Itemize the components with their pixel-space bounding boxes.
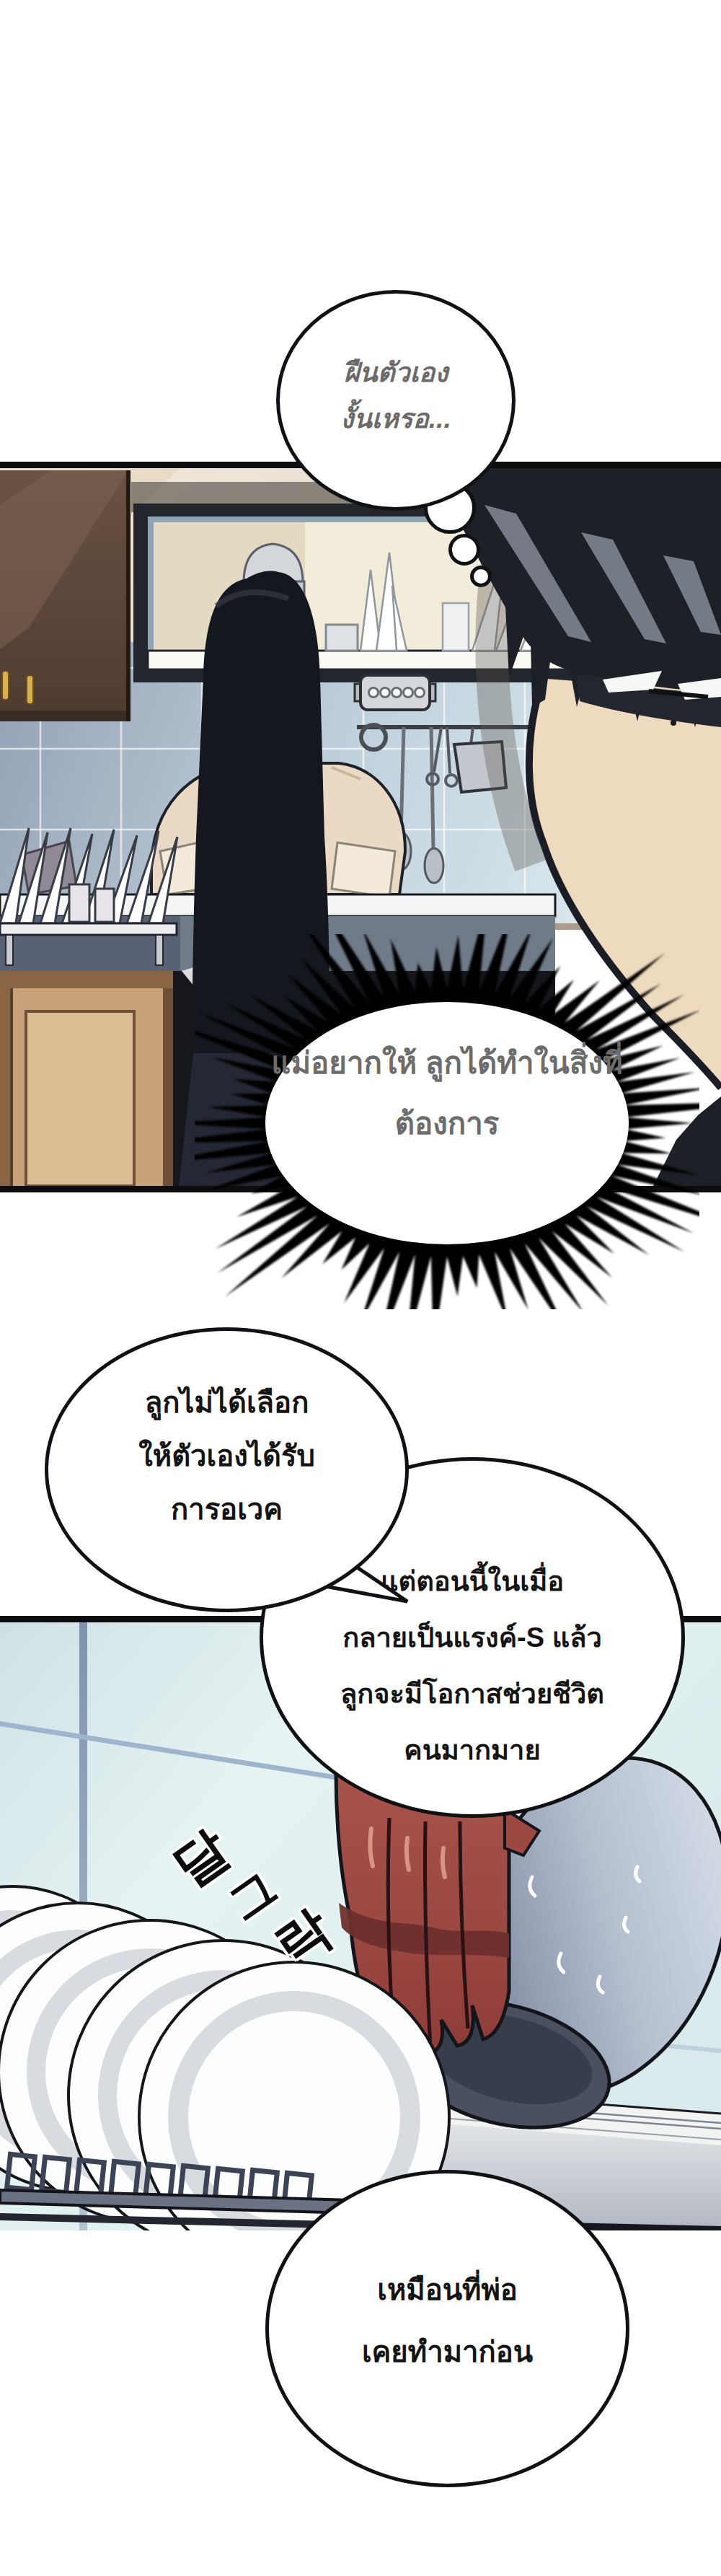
cabinet-handle	[2, 671, 9, 700]
bubble2-line: คนมากมาย	[404, 1722, 540, 1778]
rolled-cuff	[332, 843, 395, 897]
thought-line: ฝืนตัวเอง	[344, 350, 448, 396]
speech-bubble-3: เหมือนที่พ่อ เคยทำมาก่อน	[265, 2170, 629, 2487]
cabinet-handle	[27, 675, 33, 704]
lower-cabinets	[0, 971, 173, 1186]
control-panel	[355, 675, 435, 710]
upper-cabinet	[0, 470, 131, 721]
thought-line: งั้นเหรอ...	[340, 396, 451, 442]
bubble2-line: กลายเป็นแรงค์-S แล้ว	[342, 1609, 602, 1666]
bubble2-line: ลูกจะมีโอกาสช่วยชีวิต	[340, 1666, 604, 1722]
burst-line: ลูกได้ทำในสิ่งที่	[425, 1046, 623, 1080]
speech-bubble-1: ลูกไม่ได้เลือก ให้ตัวเองได้รับ การอเวค	[45, 1327, 409, 1612]
burst-line: แม่อยากให้	[271, 1046, 417, 1080]
control-buttons	[369, 688, 425, 698]
bubble1-line: ลูกไม่ได้เลือก	[145, 1376, 309, 1429]
bubble1-line: ให้ตัวเองได้รับ	[138, 1429, 315, 1482]
sfx-clatter: 달 그 락	[167, 1818, 340, 1991]
bubble3-line: เคยทำมาก่อน	[362, 2321, 533, 2383]
burst-line: ต้องการ	[395, 1107, 500, 1140]
inner-burst-text: แม่อยากให้ ลูกได้ทำในสิ่งที่ ต้องการ	[245, 1033, 649, 1154]
bubble3-line: เหมือนที่พ่อ	[377, 2259, 518, 2321]
mole	[671, 720, 676, 726]
bubble1-line: การอเวค	[171, 1482, 283, 1536]
thought-trail-circle	[448, 534, 480, 566]
thought-trail-circle	[470, 566, 492, 587]
comic-page: แม่อยากให้ ลูกได้ทำในสิ่งที่ ต้องการ	[0, 0, 721, 2576]
thought-bubble: ฝืนตัวเอง งั้นเหรอ...	[276, 290, 516, 511]
